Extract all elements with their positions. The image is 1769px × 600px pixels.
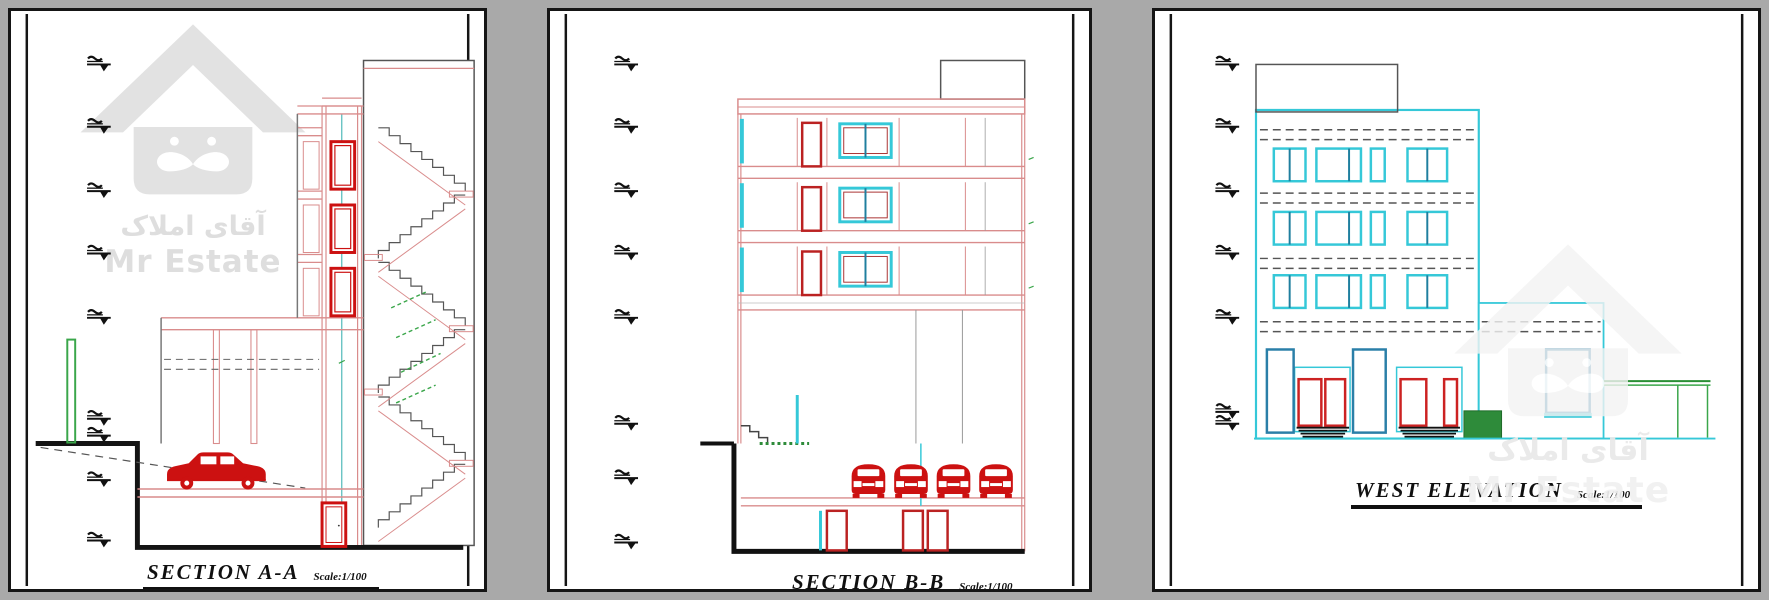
stair-tower	[364, 60, 475, 545]
window-icon	[840, 252, 891, 286]
parking-slab	[741, 498, 1025, 506]
door-icon	[928, 511, 948, 551]
window-icon	[1371, 275, 1385, 308]
window-icon	[1316, 149, 1361, 182]
elevator-door-icon	[303, 268, 354, 316]
window-icon	[1316, 275, 1361, 308]
car-front-icon	[937, 464, 971, 498]
level-marker-icons	[1215, 57, 1239, 431]
planter-box	[1464, 411, 1502, 439]
floor-unit	[740, 118, 985, 166]
sheet-west-elevation: آقای املاک Mr Estate WEST ELEVATION Scal…	[1152, 8, 1761, 592]
green-post	[67, 340, 75, 443]
ground-floor	[741, 310, 963, 444]
title-block-section-a: SECTION A-A Scale:1/100	[143, 560, 379, 591]
window-row	[1274, 149, 1447, 182]
glazed-panel	[1267, 349, 1294, 432]
entry-steps	[741, 426, 768, 444]
drawing-title: WEST ELEVATION	[1355, 478, 1563, 503]
door-icon	[802, 123, 821, 167]
floor-unit	[740, 247, 985, 295]
penthouse-box	[1256, 64, 1398, 112]
car-front-icon	[894, 464, 928, 498]
title-block-section-b: SECTION B-B Scale:1/100	[788, 570, 1024, 592]
window-icon	[840, 124, 891, 158]
elevator-door-icon	[303, 205, 354, 253]
car-front-icon	[979, 464, 1013, 498]
parked-cars	[852, 464, 1013, 498]
section-b-drawing	[550, 11, 1089, 589]
elevator-door-icon	[303, 142, 354, 190]
entrance-door-icon	[1299, 379, 1322, 426]
door-icon	[802, 252, 821, 296]
window-icon	[840, 188, 891, 222]
sheet-section-a-a: آقای املاک Mr Estate	[8, 8, 487, 592]
window-row	[1274, 275, 1447, 308]
door-icon	[903, 511, 923, 551]
entrance-door-icon	[1444, 379, 1457, 426]
drawing-title: SECTION B-B	[792, 570, 945, 592]
door-icon	[827, 511, 847, 551]
dimension-marks	[1029, 157, 1034, 288]
garden-fence	[1604, 381, 1711, 437]
scale-label: Scale:1/100	[1577, 489, 1630, 503]
glazed-panel	[1353, 349, 1386, 432]
basement-doors	[819, 511, 948, 551]
title-block-west-elevation: WEST ELEVATION Scale:1/100	[1351, 478, 1642, 509]
car-side-icon	[167, 452, 266, 489]
level-marker-icons	[614, 57, 638, 550]
window-icon	[1371, 149, 1385, 182]
scale-label: Scale:1/100	[314, 571, 367, 585]
floor-unit	[740, 182, 985, 230]
window-icon	[1371, 212, 1385, 245]
section-a-drawing	[11, 11, 484, 589]
parking-slab	[137, 489, 363, 497]
drawing-sheet-page: { "page": { "background": "#a9a9a9", "sh…	[0, 0, 1769, 600]
sheet-section-b-b: SECTION B-B Scale:1/100	[547, 8, 1092, 592]
window-icon	[1546, 349, 1590, 412]
entrance-door-icon	[1401, 379, 1427, 426]
penthouse-box	[941, 60, 1025, 99]
entrance-door-icon	[1325, 379, 1345, 426]
window-row	[1274, 212, 1447, 245]
door-icon	[802, 187, 821, 231]
car-front-icon	[852, 464, 886, 498]
drawing-title: SECTION A-A	[147, 560, 300, 585]
level-marker-icons	[87, 57, 111, 548]
elevator-doors	[303, 142, 354, 316]
basement-door-icon	[322, 503, 346, 547]
window-icon	[1316, 212, 1361, 245]
scale-label: Scale:1/100	[959, 581, 1012, 592]
